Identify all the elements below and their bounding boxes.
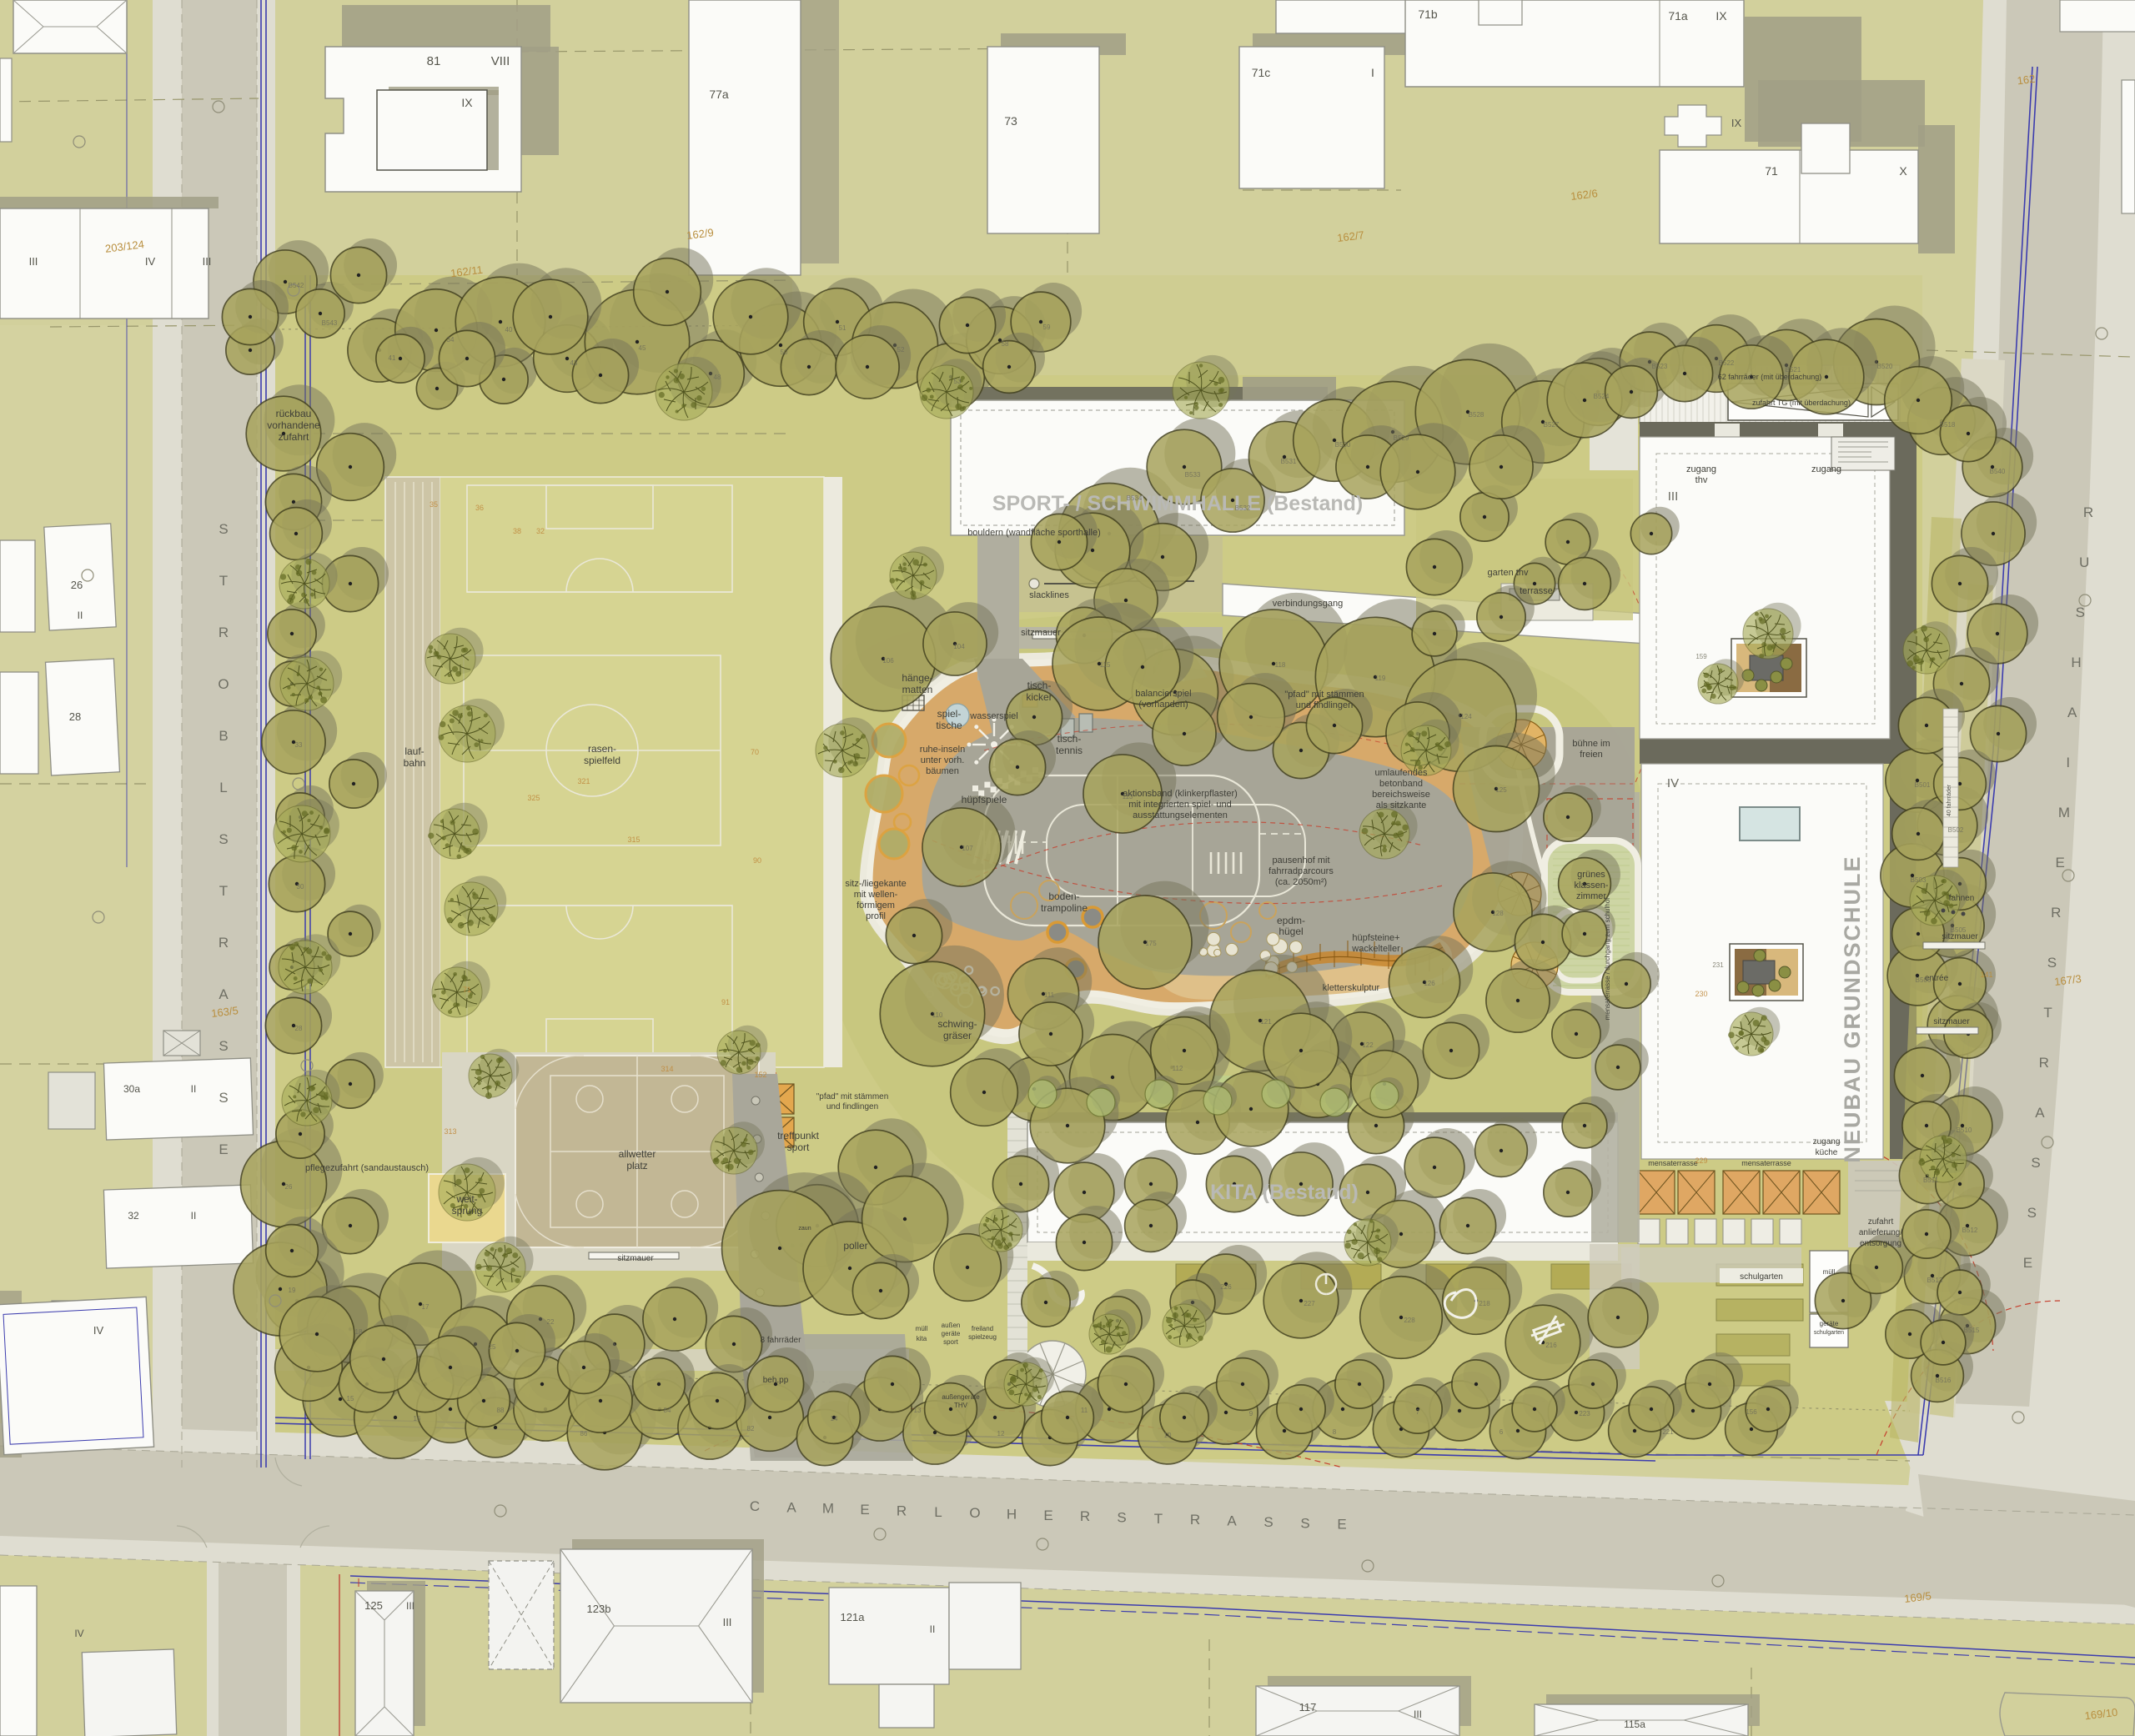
svg-text:104: 104 — [953, 643, 965, 650]
svg-text:E: E — [860, 1502, 869, 1518]
svg-text:121a: 121a — [841, 1611, 866, 1623]
svg-text:B524: B524 — [1594, 393, 1610, 400]
svg-text:sitzmauer: sitzmauer — [1933, 1017, 1970, 1026]
svg-text:C: C — [750, 1498, 760, 1514]
svg-text:22: 22 — [547, 1318, 555, 1326]
svg-text:70: 70 — [751, 748, 759, 756]
svg-text:matten: matten — [902, 684, 933, 695]
svg-text:beh.pp: beh.pp — [763, 1376, 789, 1385]
svg-text:S: S — [2031, 1155, 2040, 1171]
svg-text:B511: B511 — [1923, 1177, 1939, 1184]
svg-text:spielzeug: spielzeug — [968, 1333, 997, 1341]
svg-text:freiland: freiland — [972, 1325, 993, 1332]
svg-text:bäumen: bäumen — [926, 766, 959, 776]
svg-text:profil: profil — [866, 911, 886, 921]
svg-text:T: T — [1154, 1511, 1163, 1527]
svg-text:B522: B522 — [1719, 359, 1735, 367]
svg-text:32: 32 — [128, 1210, 139, 1222]
svg-text:pflegezufahrt (sandaustausch): pflegezufahrt (sandaustausch) — [305, 1163, 429, 1173]
svg-text:L: L — [219, 780, 227, 795]
svg-text:schulgarten: schulgarten — [1814, 1330, 1844, 1336]
svg-text:schwing-: schwing- — [937, 1018, 977, 1030]
svg-text:zufahrt: zufahrt — [1868, 1217, 1894, 1227]
svg-text:86: 86 — [580, 1430, 588, 1437]
svg-text:IX: IX — [1716, 9, 1727, 23]
svg-text:58: 58 — [1002, 340, 1009, 348]
svg-text:IV: IV — [74, 1628, 83, 1639]
svg-text:klassen-: klassen- — [1575, 881, 1609, 891]
svg-text:15: 15 — [347, 1395, 354, 1402]
svg-text:B513: B513 — [1927, 1277, 1943, 1284]
svg-text:bühne im: bühne im — [1572, 739, 1610, 749]
svg-text:40 fahrräder: 40 fahrräder — [1947, 784, 1952, 816]
svg-text:B523: B523 — [1652, 363, 1668, 370]
svg-text:kicker: kicker — [1026, 691, 1052, 703]
svg-text:müll: müll — [1823, 1268, 1836, 1276]
svg-text:R: R — [219, 625, 229, 640]
svg-text:R: R — [897, 1503, 907, 1518]
svg-text:III: III — [723, 1616, 732, 1628]
svg-text:30: 30 — [297, 883, 304, 891]
svg-text:freien: freien — [1580, 750, 1603, 760]
svg-text:"pfad" mit stämmen: "pfad" mit stämmen — [1284, 690, 1364, 700]
svg-text:X: X — [1899, 164, 1907, 178]
svg-text:L: L — [934, 1504, 942, 1520]
svg-text:B506: B506 — [1916, 976, 1932, 984]
svg-text:slacklines: slacklines — [1029, 590, 1069, 600]
svg-text:betonband: betonband — [1379, 779, 1423, 789]
svg-text:36: 36 — [475, 504, 484, 512]
svg-text:12: 12 — [997, 1430, 1005, 1437]
svg-text:O: O — [218, 676, 229, 692]
svg-text:U: U — [2079, 554, 2089, 570]
svg-text:IV: IV — [145, 255, 156, 268]
svg-text:T: T — [2043, 1005, 2052, 1021]
svg-text:III: III — [1668, 489, 1679, 504]
svg-text:allwetter: allwetter — [619, 1148, 656, 1160]
svg-text:I: I — [2066, 755, 2070, 770]
svg-text:boden-: boden- — [1048, 891, 1079, 902]
svg-text:E: E — [1043, 1508, 1052, 1523]
svg-text:III: III — [406, 1600, 414, 1612]
svg-text:10: 10 — [1164, 1432, 1172, 1439]
svg-text:spiel-: spiel- — [937, 708, 962, 720]
svg-text:73: 73 — [1004, 114, 1017, 128]
svg-text:88: 88 — [497, 1407, 505, 1414]
svg-text:26: 26 — [285, 1183, 293, 1191]
svg-text:123b: 123b — [587, 1603, 611, 1615]
svg-text:spielfeld: spielfeld — [584, 755, 620, 766]
svg-text:9: 9 — [1249, 1410, 1253, 1417]
svg-text:28: 28 — [295, 1025, 303, 1032]
svg-text:313: 313 — [444, 1127, 456, 1136]
svg-text:228: 228 — [1404, 1317, 1415, 1324]
svg-text:71: 71 — [463, 986, 471, 994]
svg-text:umlaufendes: umlaufendes — [1375, 768, 1428, 778]
svg-text:und findlingen: und findlingen — [826, 1102, 878, 1111]
svg-text:112: 112 — [1173, 1065, 1183, 1072]
svg-text:32: 32 — [536, 527, 545, 535]
svg-text:sitz-/liegekante: sitz-/liegekante — [845, 879, 906, 889]
svg-text:B543: B543 — [322, 319, 338, 327]
svg-text:52: 52 — [897, 346, 905, 354]
svg-text:117: 117 — [1299, 1701, 1317, 1713]
svg-text:314: 314 — [661, 1065, 673, 1073]
svg-text:garten thv: garten thv — [1488, 568, 1529, 578]
svg-text:B515: B515 — [1964, 1327, 1980, 1334]
svg-text:als sitzkante: als sitzkante — [1376, 800, 1427, 810]
svg-text:aktionsband (klinkerpflaster): aktionsband (klinkerpflaster) — [1123, 789, 1238, 799]
svg-text:S: S — [2047, 955, 2057, 971]
svg-text:mensaterrasse: mensaterrasse — [1648, 1159, 1698, 1167]
svg-text:33: 33 — [295, 741, 303, 749]
svg-text:M: M — [822, 1501, 834, 1517]
svg-text:221: 221 — [1662, 1428, 1674, 1436]
svg-text:7: 7 — [1416, 1408, 1420, 1416]
svg-text:schulgarten: schulgarten — [1740, 1272, 1783, 1282]
svg-text:förmigem: förmigem — [857, 901, 895, 911]
svg-text:77a: 77a — [709, 88, 729, 101]
svg-text:71a: 71a — [1668, 9, 1688, 23]
svg-text:11: 11 — [1081, 1407, 1088, 1414]
svg-text:B503: B503 — [1911, 876, 1927, 884]
svg-text:315: 315 — [627, 835, 640, 844]
svg-text:152: 152 — [754, 1071, 766, 1079]
svg-text:sprung: sprung — [452, 1205, 483, 1217]
svg-text:141: 141 — [1980, 971, 1992, 979]
svg-text:wasserspiel: wasserspiel — [969, 711, 1017, 721]
svg-text:grünes: grünes — [1577, 870, 1605, 880]
svg-text:lauf-: lauf- — [404, 745, 424, 757]
svg-text:bahn: bahn — [404, 757, 426, 769]
svg-text:E: E — [219, 1141, 228, 1157]
svg-text:B510: B510 — [1957, 1126, 1972, 1134]
svg-text:II: II — [930, 1623, 936, 1635]
svg-text:A: A — [2067, 705, 2077, 720]
svg-text:35: 35 — [430, 500, 438, 509]
svg-text:fahnen: fahnen — [1949, 894, 1975, 903]
svg-text:19: 19 — [289, 1287, 296, 1294]
svg-text:25: 25 — [489, 1343, 496, 1351]
svg-text:gräser: gräser — [943, 1030, 972, 1041]
svg-text:bereichsweise: bereichsweise — [1372, 790, 1430, 800]
svg-text:325: 325 — [527, 794, 540, 802]
svg-text:mensaterrasse: mensaterrasse — [1741, 1159, 1791, 1167]
svg-text:125: 125 — [364, 1599, 383, 1612]
svg-text:38: 38 — [513, 527, 521, 535]
svg-text:mit wellen-: mit wellen- — [854, 890, 898, 900]
svg-text:43: 43 — [570, 359, 578, 367]
svg-text:E: E — [2023, 1255, 2032, 1271]
svg-text:küche: küche — [1816, 1148, 1838, 1157]
svg-text:zugang: zugang — [1811, 464, 1841, 474]
svg-text:fahrradparcours: fahrradparcours — [1268, 866, 1334, 876]
svg-text:zaun: zaun — [798, 1226, 811, 1232]
svg-text:tisch-: tisch- — [1027, 680, 1052, 691]
svg-text:118: 118 — [1275, 661, 1286, 669]
svg-text:106: 106 — [882, 657, 894, 665]
svg-text:121: 121 — [1260, 1018, 1272, 1026]
svg-text:41: 41 — [389, 354, 396, 362]
svg-text:B534: B534 — [1127, 494, 1143, 502]
svg-text:I: I — [1371, 66, 1374, 79]
svg-text:außengeräte: außengeräte — [942, 1393, 980, 1401]
svg-text:R: R — [1080, 1508, 1090, 1524]
svg-text:S: S — [219, 521, 228, 537]
svg-text:40: 40 — [505, 326, 513, 334]
svg-text:218: 218 — [1479, 1300, 1490, 1307]
svg-text:162: 162 — [2017, 73, 2036, 88]
svg-text:S: S — [1300, 1515, 1309, 1531]
svg-text:III: III — [203, 255, 212, 268]
svg-text:II: II — [191, 1083, 197, 1095]
svg-text:226: 226 — [1220, 1283, 1232, 1291]
svg-text:159: 159 — [1695, 653, 1707, 660]
svg-text:53: 53 — [954, 378, 962, 385]
svg-text:48: 48 — [714, 374, 721, 381]
svg-text:28: 28 — [69, 710, 81, 723]
svg-text:14: 14 — [831, 1415, 838, 1422]
svg-text:A: A — [219, 986, 229, 1002]
svg-text:113: 113 — [1123, 793, 1133, 800]
svg-text:hüpfspiele: hüpfspiele — [962, 794, 1007, 805]
svg-text:B: B — [219, 728, 228, 744]
svg-text:entsorgung: entsorgung — [1860, 1239, 1901, 1248]
svg-text:B540: B540 — [1990, 468, 2006, 475]
svg-text:8: 8 — [1333, 1428, 1337, 1436]
svg-text:45: 45 — [639, 344, 646, 352]
svg-text:thv: thv — [1695, 475, 1708, 485]
svg-text:B542: B542 — [289, 282, 304, 289]
svg-text:13: 13 — [914, 1407, 922, 1414]
svg-text:NEUBAU GRUNDSCHULE: NEUBAU GRUNDSCHULE — [1840, 855, 1865, 1162]
svg-text:B527: B527 — [1544, 421, 1560, 429]
svg-text:mit integrierten spiel- und: mit integrierten spiel- und — [1128, 800, 1232, 810]
svg-text:A: A — [1227, 1513, 1237, 1529]
svg-text:hänge-: hänge- — [902, 672, 932, 684]
svg-text:107: 107 — [962, 845, 973, 852]
svg-text:119: 119 — [1375, 675, 1386, 682]
svg-text:III: III — [29, 255, 38, 268]
svg-text:zugang: zugang — [1813, 1137, 1841, 1146]
svg-text:S: S — [219, 831, 228, 847]
svg-text:128: 128 — [1492, 910, 1504, 917]
svg-text:H: H — [1007, 1506, 1017, 1522]
svg-text:H: H — [2071, 655, 2081, 670]
svg-text:231: 231 — [1712, 961, 1724, 969]
svg-text:tische: tische — [936, 720, 962, 731]
svg-text:321: 321 — [577, 777, 590, 785]
svg-text:B502: B502 — [1948, 826, 1964, 834]
svg-text:vorhandene: vorhandene — [267, 419, 320, 431]
svg-text:II: II — [191, 1210, 197, 1222]
svg-text:sitzmauer: sitzmauer — [1021, 628, 1061, 638]
svg-text:B516: B516 — [1936, 1377, 1952, 1384]
svg-text:59: 59 — [1043, 324, 1051, 331]
svg-text:S: S — [2027, 1205, 2037, 1221]
svg-text:zimmer: zimmer — [1576, 891, 1606, 901]
svg-text:B528: B528 — [1469, 411, 1484, 419]
svg-text:T: T — [219, 883, 228, 899]
svg-text:S: S — [219, 1090, 228, 1106]
svg-text:weit-: weit- — [455, 1193, 477, 1205]
svg-text:S: S — [219, 1038, 228, 1054]
svg-text:mensaterrasse / durchgang zum: mensaterrasse / durchgang zum schulhof — [1604, 897, 1611, 1021]
svg-text:B520: B520 — [1877, 363, 1893, 370]
svg-text:anlieferung/: anlieferung/ — [1859, 1228, 1902, 1237]
svg-text:rückbau: rückbau — [276, 408, 312, 419]
svg-text:tisch-: tisch- — [1057, 733, 1082, 745]
svg-text:B521: B521 — [1786, 366, 1801, 374]
svg-text:hüpfsteine+: hüpfsteine+ — [1352, 933, 1399, 943]
svg-text:S: S — [1263, 1514, 1273, 1530]
svg-text:B512: B512 — [1962, 1227, 1978, 1234]
svg-text:71: 71 — [1765, 164, 1778, 178]
svg-text:sport: sport — [787, 1141, 810, 1153]
svg-text:kita: kita — [917, 1335, 927, 1342]
svg-text:126: 126 — [1424, 980, 1435, 987]
svg-text:THV: THV — [954, 1402, 968, 1409]
svg-text:16: 16 — [414, 1415, 421, 1422]
svg-text:156: 156 — [1746, 1408, 1757, 1416]
svg-text:34: 34 — [447, 336, 455, 344]
svg-text:82: 82 — [747, 1425, 755, 1432]
svg-text:E: E — [1337, 1517, 1346, 1533]
svg-text:71b: 71b — [1418, 8, 1438, 21]
svg-text:229: 229 — [1695, 1156, 1707, 1165]
svg-text:111: 111 — [1044, 991, 1055, 999]
svg-text:hügel: hügel — [1278, 926, 1303, 937]
svg-text:zugang: zugang — [1686, 464, 1716, 474]
svg-text:R: R — [1190, 1512, 1200, 1528]
svg-text:81: 81 — [427, 54, 441, 68]
svg-text:poller: poller — [843, 1240, 867, 1252]
svg-text:S: S — [1117, 1510, 1126, 1526]
svg-text:B501: B501 — [1915, 781, 1931, 789]
svg-text:(ca. 2050m²): (ca. 2050m²) — [1275, 877, 1327, 887]
svg-text:B530: B530 — [1335, 441, 1351, 449]
svg-text:bouldern (wandfläche sporthall: bouldern (wandfläche sporthalle) — [967, 528, 1101, 538]
svg-text:124: 124 — [1460, 713, 1472, 720]
svg-text:IV: IV — [1667, 776, 1679, 790]
svg-text:IX: IX — [461, 96, 473, 109]
svg-text:A: A — [786, 1499, 796, 1515]
svg-text:71c: 71c — [1252, 66, 1271, 79]
svg-text:115a: 115a — [1624, 1718, 1645, 1730]
svg-text:B505: B505 — [1951, 926, 1967, 934]
svg-text:platz: platz — [626, 1160, 647, 1172]
svg-text:III: III — [1414, 1708, 1422, 1720]
svg-text:"pfad" mit stämmen: "pfad" mit stämmen — [816, 1092, 889, 1101]
svg-text:175: 175 — [1145, 940, 1157, 947]
svg-text:unter vorh.: unter vorh. — [921, 755, 965, 765]
svg-text:pausenhof mit: pausenhof mit — [1272, 855, 1329, 865]
svg-text:227: 227 — [1304, 1300, 1315, 1307]
svg-text:6: 6 — [1500, 1428, 1504, 1436]
svg-text:rasen-: rasen- — [588, 743, 616, 755]
svg-text:zufahrt: zufahrt — [279, 431, 309, 443]
svg-text:84: 84 — [664, 1407, 671, 1414]
svg-text:tennis: tennis — [1056, 745, 1083, 756]
svg-text:KITA (Bestand): KITA (Bestand) — [1210, 1181, 1359, 1204]
svg-text:SPORT- / SCHWIMMHALLE (Bestand: SPORT- / SCHWIMMHALLE (Bestand) — [992, 492, 1363, 515]
svg-text:30a: 30a — [123, 1083, 140, 1095]
svg-text:wackelteller: wackelteller — [1351, 944, 1400, 954]
svg-text:R: R — [2051, 905, 2061, 921]
svg-text:223: 223 — [1579, 1410, 1590, 1417]
svg-text:kletterskulptur: kletterskulptur — [1323, 983, 1380, 993]
svg-text:geräte: geräte — [1820, 1320, 1839, 1327]
svg-text:E: E — [2055, 855, 2064, 871]
svg-text:müll: müll — [916, 1325, 928, 1332]
svg-text:B533: B533 — [1185, 471, 1201, 479]
svg-text:B532: B532 — [1235, 504, 1251, 512]
svg-text:B518: B518 — [1940, 421, 1956, 429]
svg-text:zufahrt TG (mit überdachung): zufahrt TG (mit überdachung) — [1752, 399, 1851, 407]
svg-text:T: T — [219, 573, 228, 589]
svg-text:8 fahrräder: 8 fahrräder — [761, 1336, 802, 1345]
svg-text:B529: B529 — [1394, 434, 1409, 442]
svg-text:230: 230 — [1695, 990, 1707, 998]
svg-text:S: S — [2076, 605, 2085, 620]
svg-text:122: 122 — [1362, 1041, 1374, 1049]
svg-text:ruhe-inseln: ruhe-inseln — [920, 745, 965, 755]
svg-text:117: 117 — [1175, 691, 1186, 699]
svg-text:IX: IX — [1731, 117, 1742, 129]
svg-text:91: 91 — [721, 998, 730, 1006]
svg-text:epdm-: epdm- — [1277, 915, 1305, 926]
svg-text:R: R — [219, 935, 229, 951]
svg-text:VIII: VIII — [491, 54, 510, 68]
svg-text:115: 115 — [1100, 661, 1111, 669]
svg-text:terrasse: terrasse — [1520, 586, 1553, 596]
svg-text:51: 51 — [839, 324, 846, 332]
svg-text:O: O — [969, 1505, 980, 1521]
svg-text:62 fahrräder (mit überdachung): 62 fahrräder (mit überdachung) — [1718, 373, 1822, 381]
svg-text:216: 216 — [1545, 1342, 1557, 1349]
svg-text:50: 50 — [781, 349, 788, 356]
svg-text:treffpunkt: treffpunkt — [777, 1130, 819, 1141]
svg-text:17: 17 — [422, 1303, 430, 1311]
svg-text:R: R — [2039, 1055, 2049, 1071]
svg-text:außen: außen — [942, 1322, 961, 1329]
svg-text:trampoline: trampoline — [1041, 902, 1088, 914]
svg-text:18: 18 — [355, 1328, 363, 1336]
svg-text:B531: B531 — [1281, 458, 1297, 465]
svg-text:26: 26 — [71, 579, 83, 591]
svg-text:und findlingen: und findlingen — [1296, 700, 1354, 710]
svg-text:R: R — [2083, 504, 2093, 520]
svg-text:II: II — [78, 610, 83, 621]
svg-text:90: 90 — [753, 856, 761, 865]
svg-text:(vorhanden): (vorhanden) — [1138, 700, 1188, 710]
svg-text:geräte: geräte — [942, 1330, 961, 1337]
svg-text:125: 125 — [1495, 786, 1507, 794]
svg-text:sport: sport — [943, 1338, 959, 1346]
svg-text:IV: IV — [93, 1324, 104, 1337]
svg-text:verbindungsgang: verbindungsgang — [1273, 599, 1343, 609]
svg-text:M: M — [2058, 805, 2070, 820]
svg-text:sitzmauer: sitzmauer — [617, 1254, 654, 1263]
svg-text:110: 110 — [932, 1011, 943, 1019]
svg-text:A: A — [2035, 1105, 2045, 1121]
svg-text:ausstattungselementen: ausstattungselementen — [1133, 810, 1228, 820]
